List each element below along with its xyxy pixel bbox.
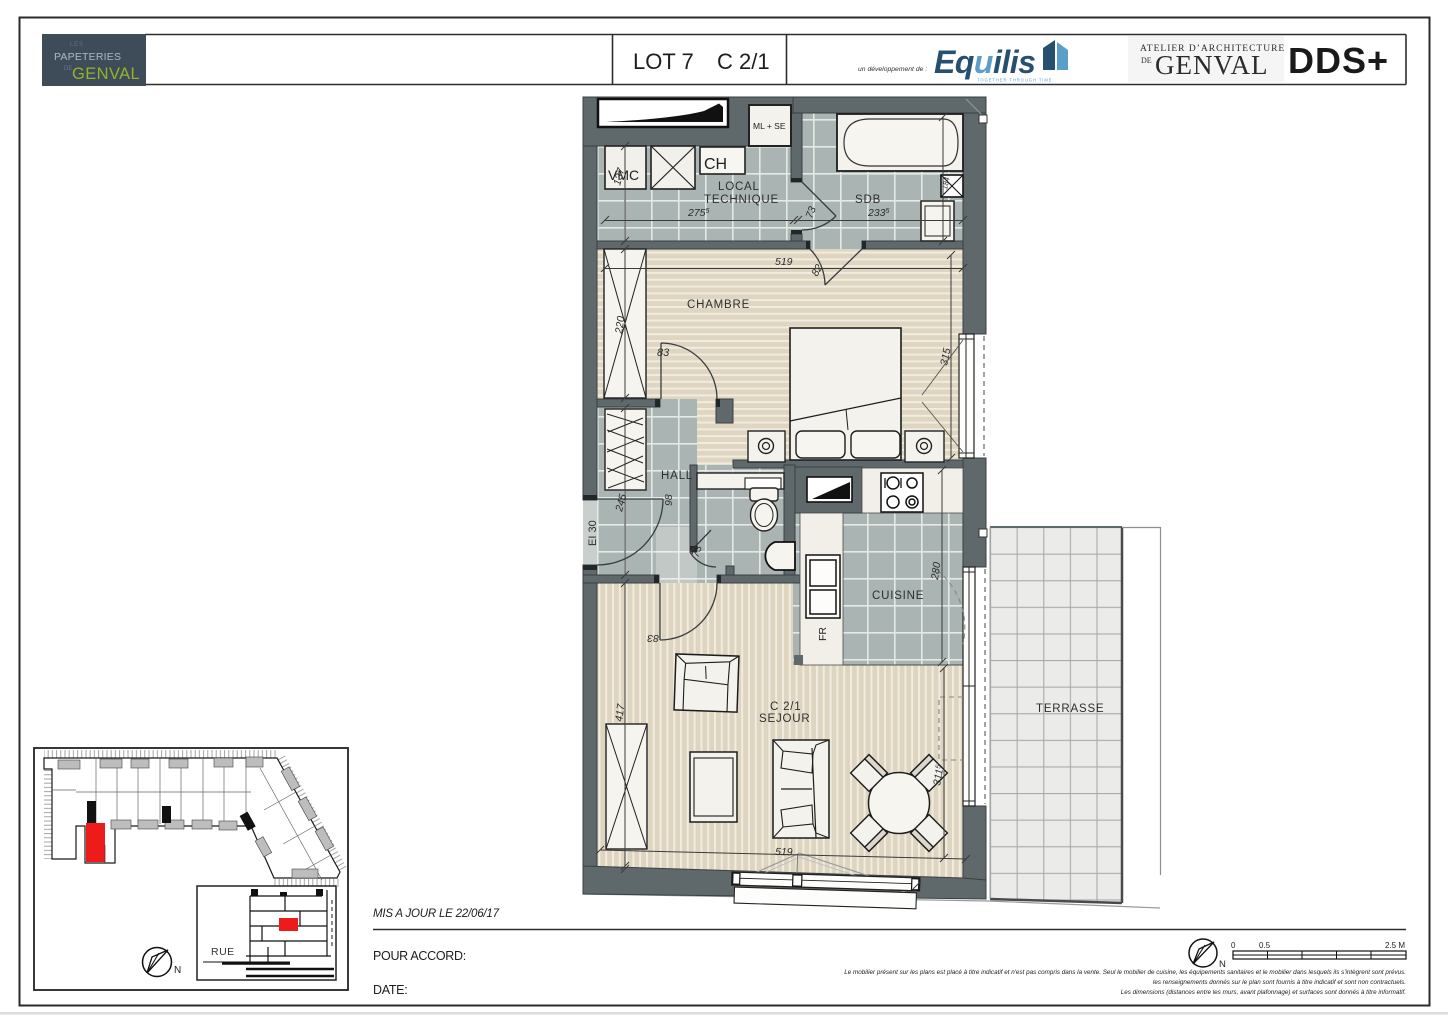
svg-text:Equilis: Equilis	[934, 44, 1035, 80]
svg-text:LOT 7: LOT 7	[633, 49, 694, 74]
svg-text:0: 0	[1231, 941, 1236, 950]
svg-text:C 2/1: C 2/1	[717, 49, 770, 74]
svg-text:TECHNIQUE: TECHNIQUE	[704, 194, 779, 206]
svg-text:GENVAL: GENVAL	[1155, 50, 1269, 80]
svg-text:C 2/1: C 2/1	[770, 701, 802, 713]
svg-text:DE: DE	[1141, 56, 1152, 65]
svg-text:519: 519	[775, 846, 793, 858]
svg-text:MIS A JOUR LE 22/06/17: MIS A JOUR LE 22/06/17	[373, 908, 500, 920]
svg-text:Le mobilier présent sur les pl: Le mobilier présent sur les plans est pl…	[844, 969, 1406, 976]
svg-text:GENVAL: GENVAL	[72, 65, 140, 83]
svg-text:2.5 M: 2.5 M	[1385, 941, 1405, 950]
svg-text:les renseignements donnés sur: les renseignements donnés sur le plan so…	[1153, 979, 1406, 986]
svg-text:FR: FR	[817, 627, 829, 641]
svg-text:TERRASSE: TERRASSE	[1036, 703, 1104, 715]
svg-text:SDB: SDB	[855, 194, 881, 206]
svg-text:CHAMBRE: CHAMBRE	[687, 299, 750, 311]
svg-text:DATE:: DATE:	[373, 983, 407, 997]
svg-text:CUISINE: CUISINE	[872, 590, 924, 602]
svg-text:TOGETHER THROUGH TIME: TOGETHER THROUGH TIME	[977, 78, 1052, 83]
svg-text:EI 30: EI 30	[587, 520, 599, 546]
svg-text:SEJOUR: SEJOUR	[759, 713, 810, 725]
svg-text:ML + SE: ML + SE	[753, 121, 786, 131]
svg-text:POUR ACCORD:: POUR ACCORD:	[373, 949, 466, 963]
svg-text:un développement de :: un développement de :	[858, 66, 927, 73]
svg-text:CH: CH	[704, 156, 727, 173]
svg-text:N: N	[174, 965, 181, 976]
svg-text:83: 83	[657, 347, 670, 359]
svg-text:DDS+: DDS+	[1288, 40, 1389, 81]
svg-text:HALL: HALL	[661, 470, 693, 482]
svg-text:RUE: RUE	[211, 946, 235, 958]
svg-text:LES: LES	[70, 42, 84, 48]
svg-text:0.5: 0.5	[1259, 941, 1271, 950]
svg-text:519: 519	[775, 256, 793, 268]
svg-text:LOCAL: LOCAL	[718, 181, 760, 193]
svg-text:PAPETERIES: PAPETERIES	[54, 51, 121, 63]
svg-text:Les dimensions (distances entr: Les dimensions (distances entre les murs…	[1121, 989, 1406, 996]
svg-text:98: 98	[663, 494, 675, 506]
svg-text:83: 83	[647, 632, 659, 644]
